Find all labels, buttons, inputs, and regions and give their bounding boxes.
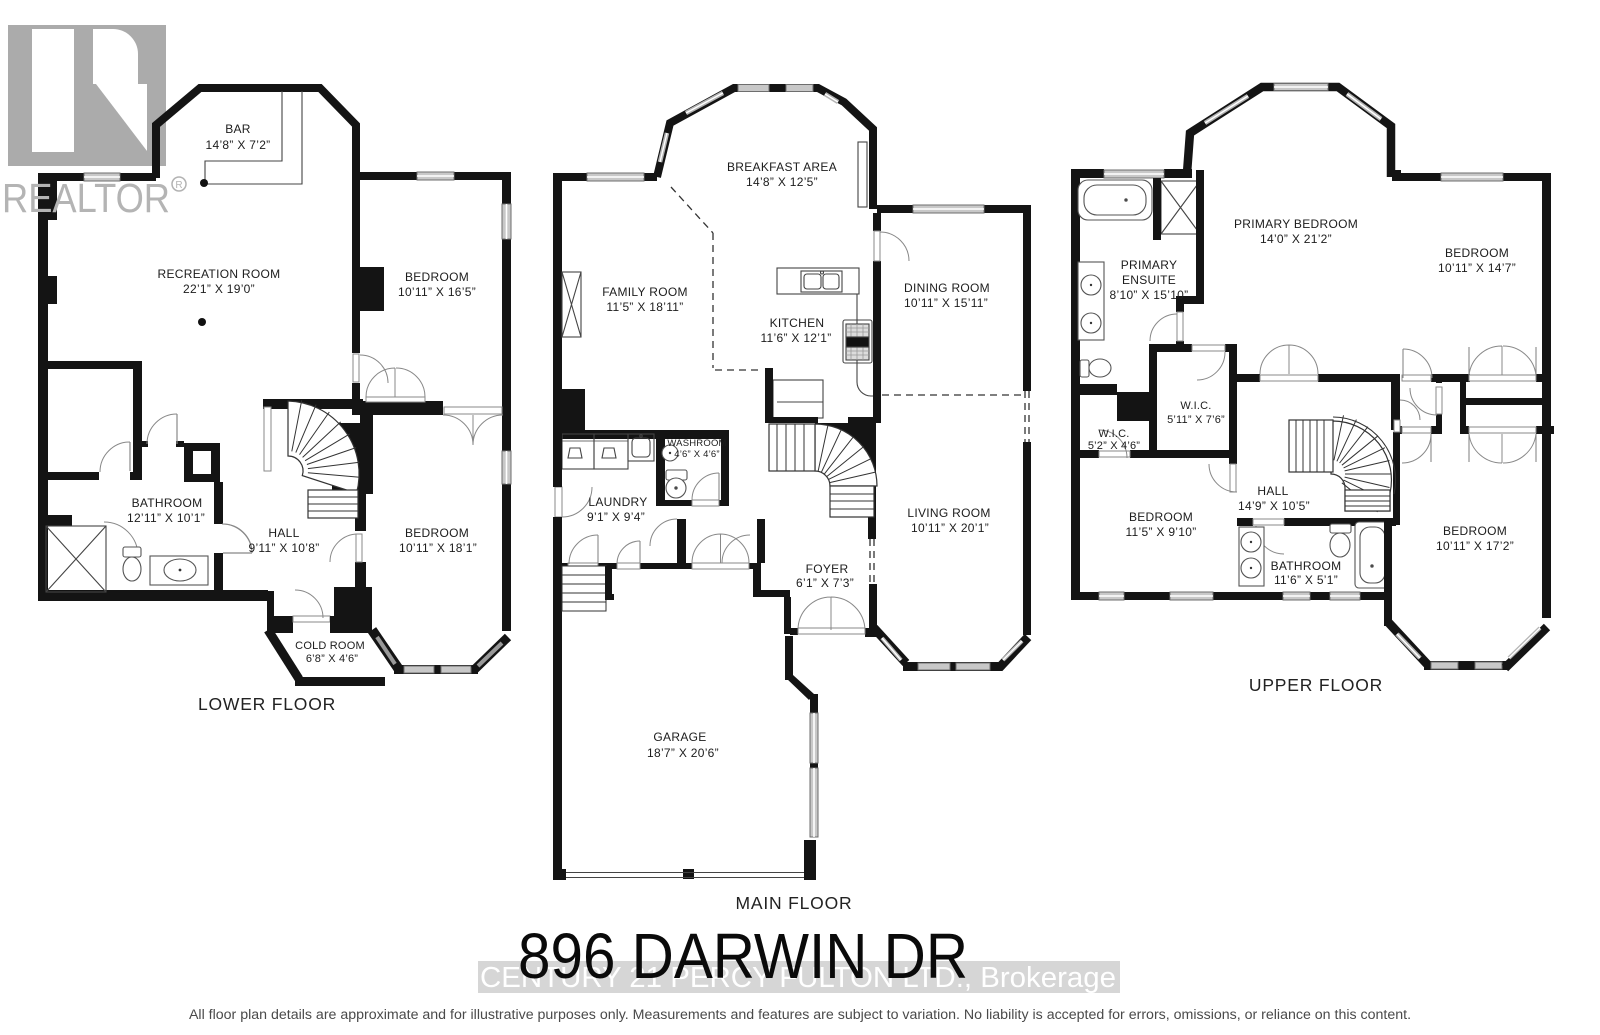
svg-text:HALL: HALL (268, 526, 299, 540)
svg-text:LAUNDRY: LAUNDRY (588, 495, 647, 509)
svg-text:LOWER FLOOR: LOWER FLOOR (198, 694, 336, 714)
svg-text:14’8” X 7’2”: 14’8” X 7’2” (206, 138, 271, 152)
svg-text:11’6” X 5’1”: 11’6” X 5’1” (1274, 573, 1338, 587)
svg-text:MAIN FLOOR: MAIN FLOOR (736, 893, 853, 913)
svg-text:12’11” X 10’1”: 12’11” X 10’1” (127, 511, 205, 525)
svg-text:All floor plan details are app: All floor plan details are approximate a… (189, 1007, 1411, 1023)
svg-text:LIVING ROOM: LIVING ROOM (907, 506, 990, 520)
svg-text:UPPER FLOOR: UPPER FLOOR (1249, 675, 1383, 695)
svg-text:10’11” X 16’5”: 10’11” X 16’5” (398, 285, 476, 299)
svg-text:GARAGE: GARAGE (653, 730, 706, 744)
svg-text:PRIMARY: PRIMARY (1121, 258, 1178, 272)
svg-text:6’8” X 4’6”: 6’8” X 4’6” (306, 653, 358, 665)
svg-text:BEDROOM: BEDROOM (1443, 524, 1507, 538)
svg-text:DINING ROOM: DINING ROOM (904, 281, 990, 295)
svg-text:WASHROOM: WASHROOM (667, 438, 726, 449)
svg-text:HALL: HALL (1257, 484, 1288, 498)
svg-text:22’1” X 19’0”: 22’1” X 19’0” (183, 282, 255, 296)
svg-text:5’11” X 7’6”: 5’11” X 7’6” (1167, 414, 1225, 426)
svg-text:BEDROOM: BEDROOM (405, 270, 469, 284)
svg-text:8’10” X 15’10”: 8’10” X 15’10” (1110, 288, 1189, 302)
svg-text:14’9” X 10’5”: 14’9” X 10’5” (1238, 499, 1310, 513)
svg-text:14’0” X 21’2”: 14’0” X 21’2” (1260, 232, 1332, 246)
svg-text:10’11” X 18’1”: 10’11” X 18’1” (399, 541, 477, 555)
svg-text:BEDROOM: BEDROOM (1445, 246, 1509, 260)
svg-text:W.I.C.: W.I.C. (1180, 400, 1211, 412)
svg-text:18’7” X 20’6”: 18’7” X 20’6” (647, 746, 719, 760)
svg-text:KITCHEN: KITCHEN (770, 316, 825, 330)
svg-text:REALTOR: REALTOR (2, 175, 170, 221)
svg-text:9’11” X 10’8”: 9’11” X 10’8” (248, 541, 319, 555)
svg-text:896 DARWIN DR: 896 DARWIN DR (518, 920, 968, 992)
svg-text:10’11” X 20’1”: 10’11” X 20’1” (911, 521, 989, 535)
svg-text:FOYER: FOYER (806, 562, 849, 576)
svg-text:COLD ROOM: COLD ROOM (295, 640, 365, 652)
svg-text:R: R (175, 180, 182, 191)
svg-text:BAR: BAR (225, 122, 251, 136)
svg-text:14’8” X 12’5”: 14’8” X 12’5” (746, 175, 818, 189)
svg-text:FAMILY ROOM: FAMILY ROOM (602, 285, 688, 299)
svg-text:BEDROOM: BEDROOM (1129, 510, 1193, 524)
svg-text:5’2” X 4’6”: 5’2” X 4’6” (1088, 440, 1140, 452)
svg-text:10’11” X 15’11”: 10’11” X 15’11” (904, 296, 988, 310)
svg-text:9’1” X 9’4”: 9’1” X 9’4” (587, 510, 645, 524)
svg-text:11’6” X 12’1”: 11’6” X 12’1” (760, 331, 831, 345)
svg-text:11’5” X 18’11”: 11’5” X 18’11” (606, 300, 683, 314)
svg-text:W.I.C.: W.I.C. (1098, 428, 1129, 440)
svg-text:4’6” X 4’6”: 4’6” X 4’6” (674, 449, 720, 460)
svg-text:10’11” X 14’7”: 10’11” X 14’7” (1438, 261, 1516, 275)
svg-text:6’1” X 7’3”: 6’1” X 7’3” (796, 576, 854, 590)
svg-text:BEDROOM: BEDROOM (405, 526, 469, 540)
svg-text:11’5” X 9’10”: 11’5” X 9’10” (1125, 525, 1196, 539)
svg-text:ENSUITE: ENSUITE (1122, 273, 1176, 287)
svg-text:RECREATION ROOM: RECREATION ROOM (158, 267, 281, 281)
svg-text:BREAKFAST AREA: BREAKFAST AREA (727, 160, 837, 174)
svg-text:BATHROOM: BATHROOM (132, 496, 203, 510)
svg-text:BATHROOM: BATHROOM (1271, 559, 1342, 573)
svg-text:10’11” X 17’2”: 10’11” X 17’2” (1436, 539, 1514, 553)
svg-text:PRIMARY BEDROOM: PRIMARY BEDROOM (1234, 217, 1358, 231)
